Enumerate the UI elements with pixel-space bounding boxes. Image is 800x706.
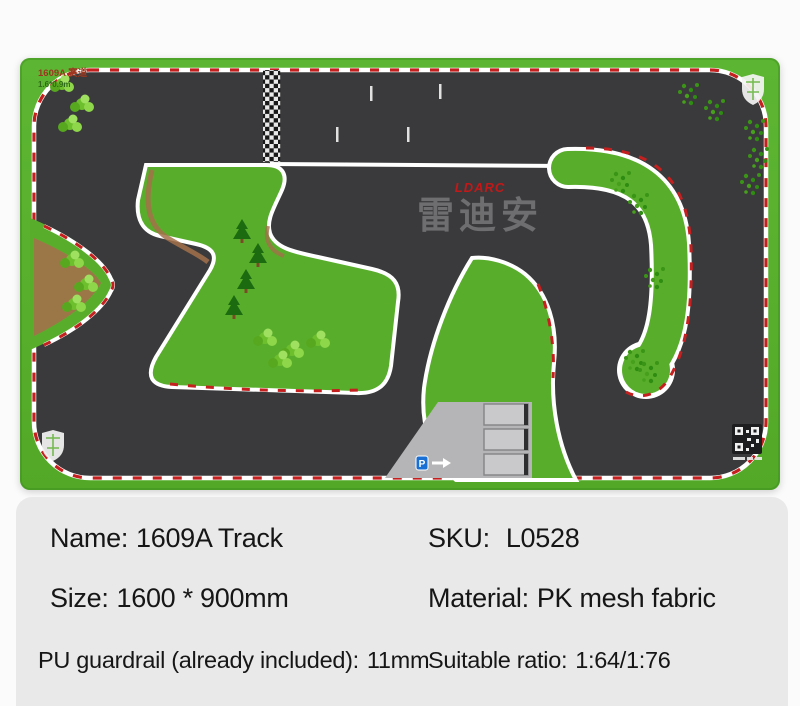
spec-ratio-value: 1:64/1:76: [575, 647, 670, 673]
spec-sku: SKU:L0528: [428, 523, 788, 554]
spec-material-value: PK mesh fabric: [537, 583, 716, 613]
spec-ratio-label: Suitable ratio:: [428, 647, 567, 673]
spec-name-value: 1609A Track: [136, 523, 283, 553]
parking-space: [484, 404, 528, 475]
svg-text:1609A 赛道: 1609A 赛道: [38, 67, 88, 79]
product-photo: P: [0, 0, 800, 497]
start-finish-line: [263, 70, 280, 162]
spec-size-label: Size:: [50, 583, 109, 613]
brand-logo-chinese: 雷迪安: [417, 195, 543, 236]
qr-caption: [733, 457, 762, 460]
spec-guardrail-label: PU guardrail (already included):: [38, 647, 359, 673]
parking-sign-icon: P: [416, 456, 428, 470]
spec-sku-value: L0528: [506, 523, 580, 553]
spec-ratio: Suitable ratio:1:64/1:76: [428, 647, 788, 674]
spec-size: Size:1600 * 900mm: [50, 583, 428, 614]
spec-size-value: 1600 * 900mm: [117, 583, 289, 613]
spec-material: Material:PK mesh fabric: [428, 583, 788, 614]
spec-material-label: Material:: [428, 583, 529, 613]
product-spec-panel: Name:1609A Track SKU:L0528 Size:1600 * 9…: [16, 497, 788, 706]
svg-text:1.6*0.9m: 1.6*0.9m: [38, 80, 70, 89]
brand-logo-text: LDARC: [455, 180, 506, 195]
spec-name: Name:1609A Track: [50, 523, 428, 554]
track-mat-image: P: [20, 58, 780, 490]
spec-guardrail: PU guardrail (already included):11mm: [38, 647, 428, 674]
track-edge-line: [270, 164, 568, 166]
race-track-svg: P: [20, 58, 780, 490]
spec-name-label: Name:: [50, 523, 128, 553]
svg-text:P: P: [419, 459, 426, 470]
spec-guardrail-value: 11mm: [367, 647, 429, 673]
spec-sku-label: SKU:: [428, 523, 490, 553]
